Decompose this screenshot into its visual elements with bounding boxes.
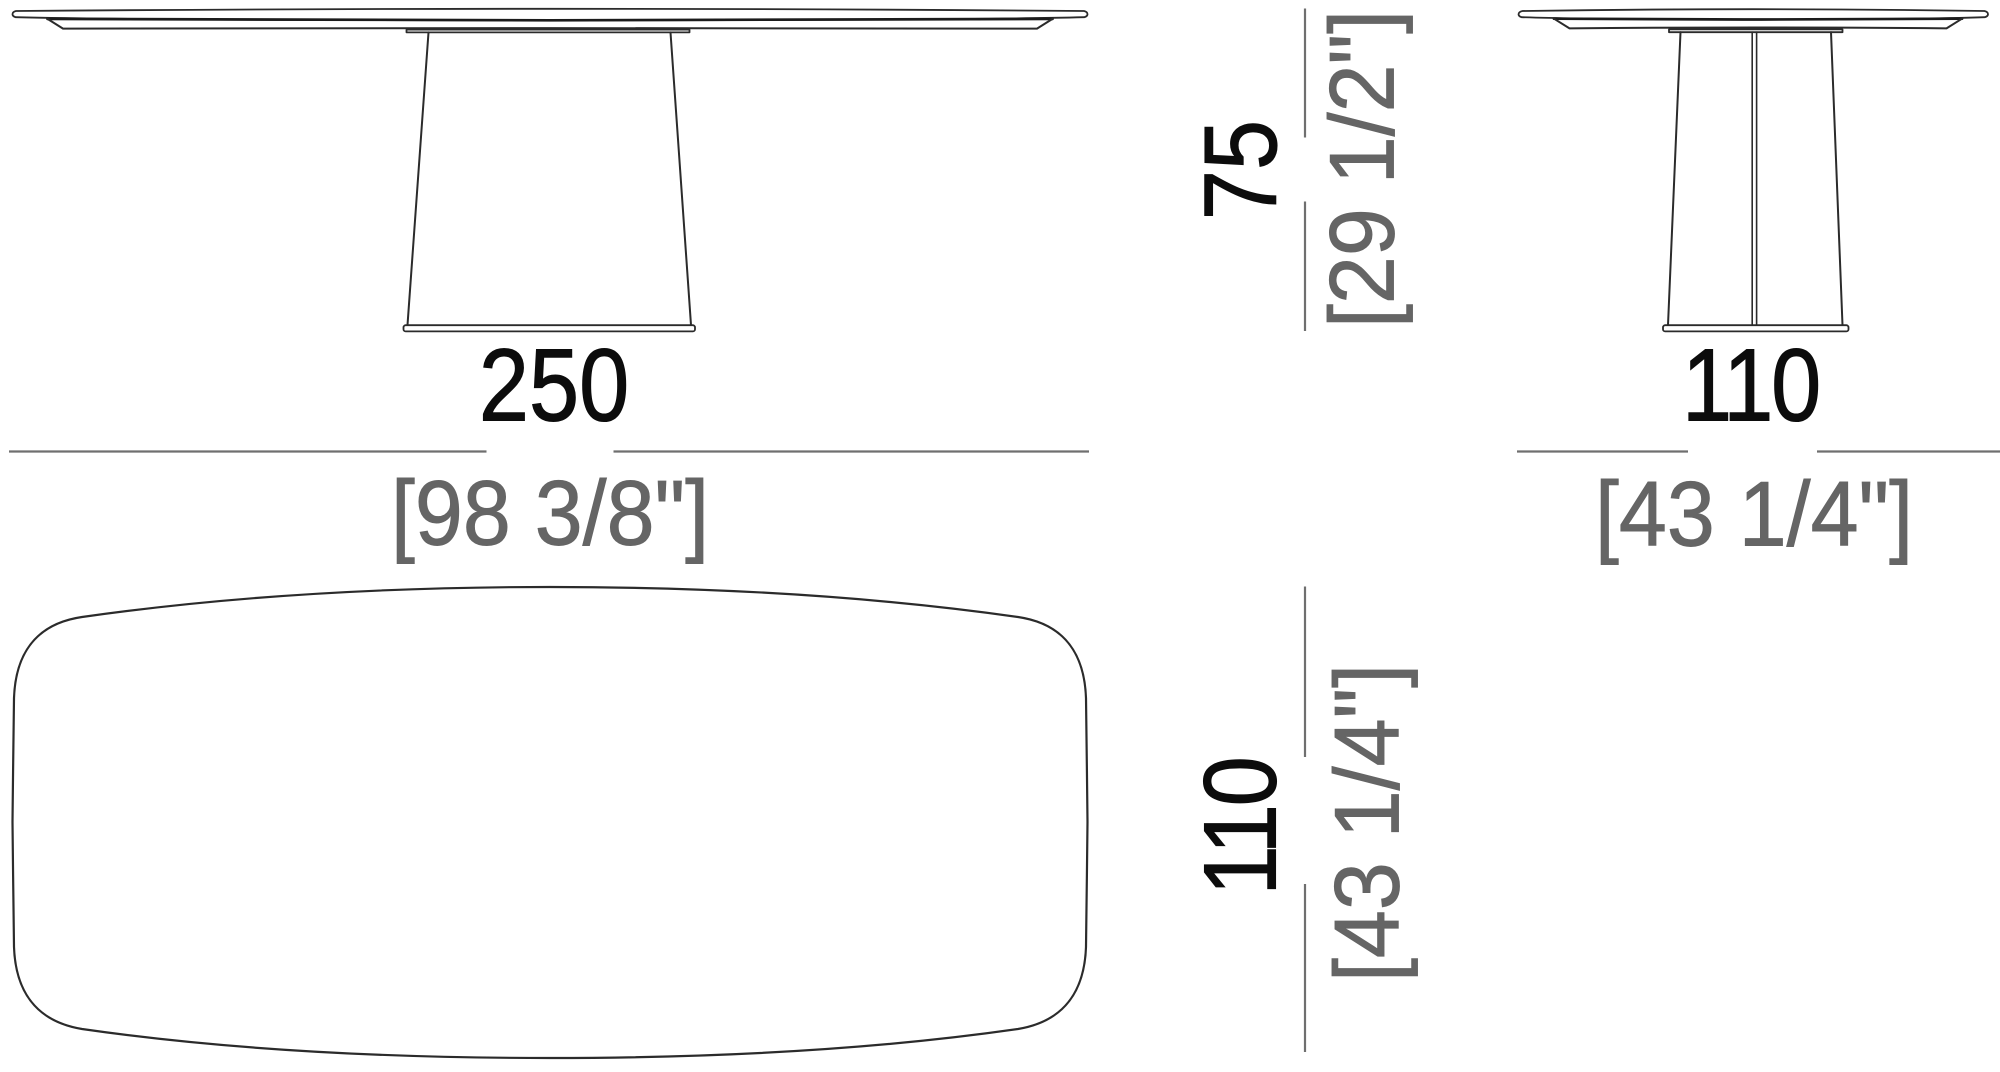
svg-text:110: 110: [1682, 327, 1819, 443]
svg-text:[98 3/8"]: [98 3/8"]: [391, 461, 709, 564]
svg-text:[29 1/2"]: [29 1/2"]: [1310, 10, 1413, 328]
svg-text:250: 250: [479, 327, 629, 443]
svg-text:[43 1/4"]: [43 1/4"]: [1595, 462, 1913, 565]
svg-text:110: 110: [1182, 758, 1298, 895]
svg-text:75: 75: [1182, 120, 1298, 220]
svg-text:[43 1/4"]: [43 1/4"]: [1315, 664, 1418, 982]
